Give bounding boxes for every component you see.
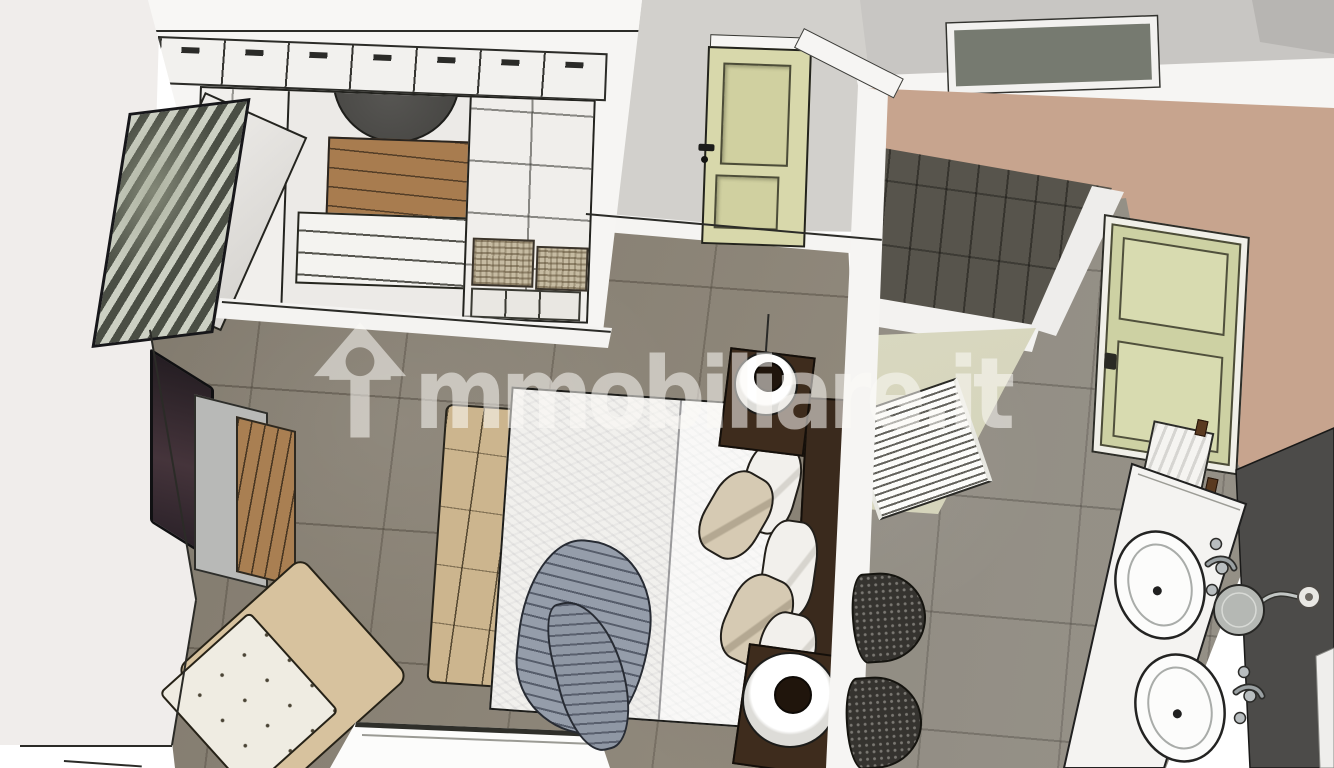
door-handle (698, 144, 714, 152)
interior-door (701, 46, 812, 248)
seam-line (64, 760, 142, 767)
door-hinge (701, 156, 708, 163)
round-mirror (330, 86, 462, 145)
lamp-shade-opening (774, 676, 812, 714)
seam-line (20, 745, 172, 747)
window-handle (1104, 352, 1117, 370)
lamp-shade-opening (754, 362, 784, 392)
dresser-wood-front (236, 416, 296, 587)
wardrobe-wood-dresser (326, 137, 475, 222)
bedside-lamp (734, 352, 798, 416)
render-canvas: mmobiliare.it (0, 0, 1334, 768)
door-panel-top (720, 63, 792, 167)
bedside-lamp (742, 652, 838, 748)
wicker-box (535, 246, 589, 292)
wardrobe-drawer-stack (295, 211, 481, 289)
vanity-area (1040, 420, 1334, 768)
window-pane-top (1119, 237, 1229, 336)
door-panel-bottom (714, 174, 780, 230)
framed-panel (947, 16, 1159, 93)
wardrobe-top-face (148, 0, 642, 32)
storage-boxes (470, 288, 581, 322)
wicker-box (471, 238, 535, 288)
